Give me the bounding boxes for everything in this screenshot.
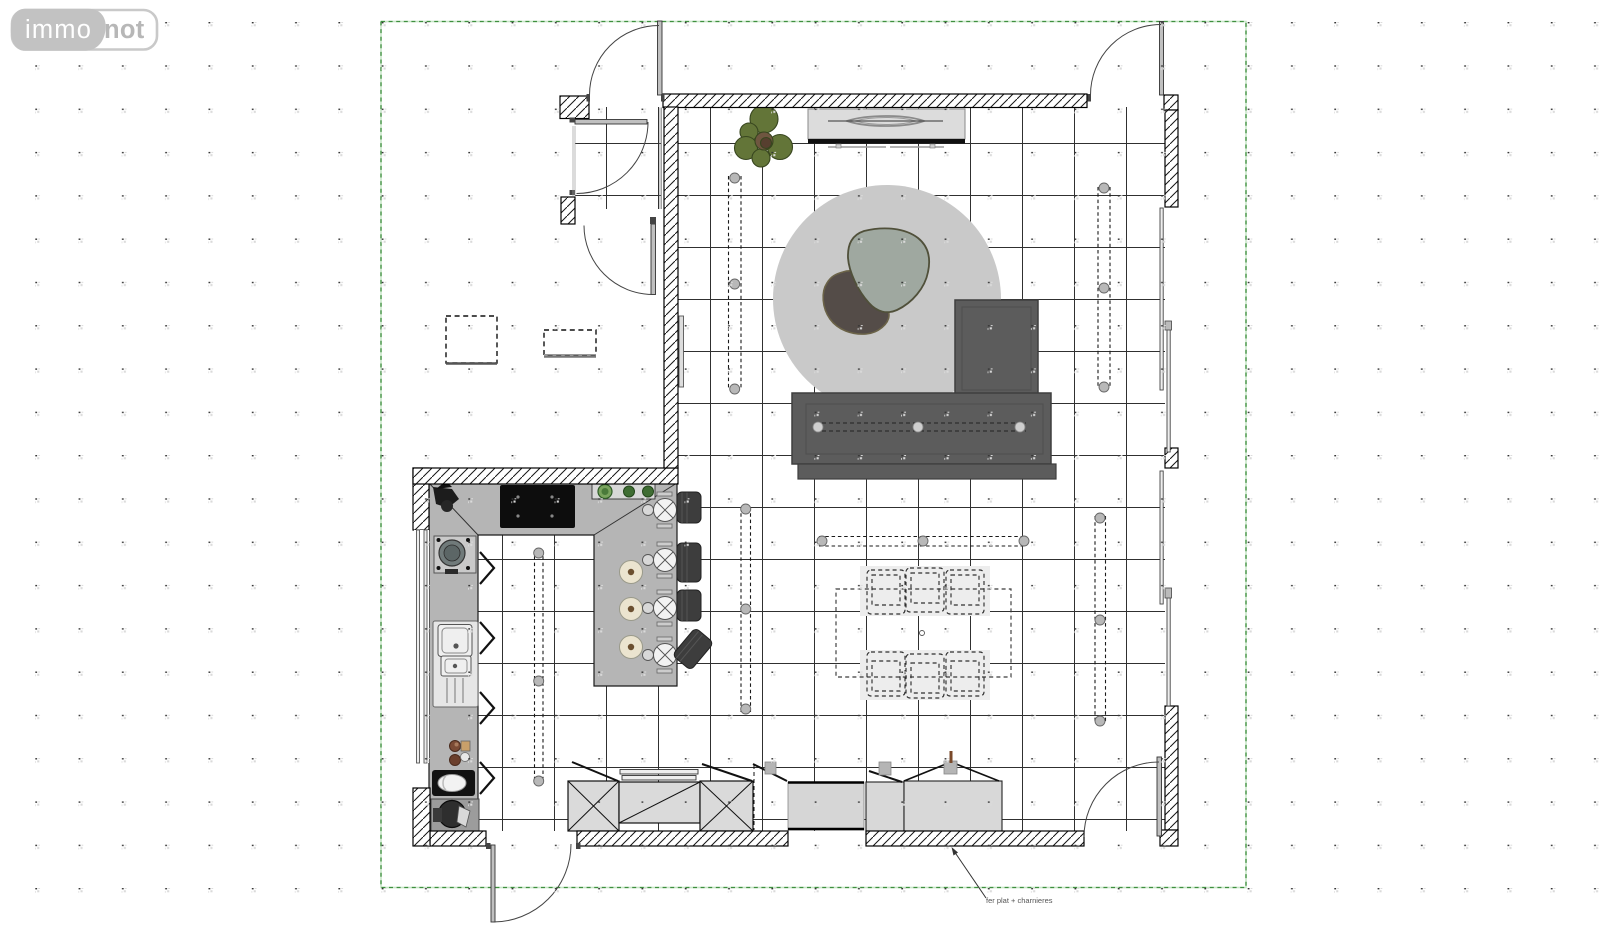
svg-text:immo: immo: [25, 16, 92, 44]
svg-text:not: not: [104, 16, 145, 44]
